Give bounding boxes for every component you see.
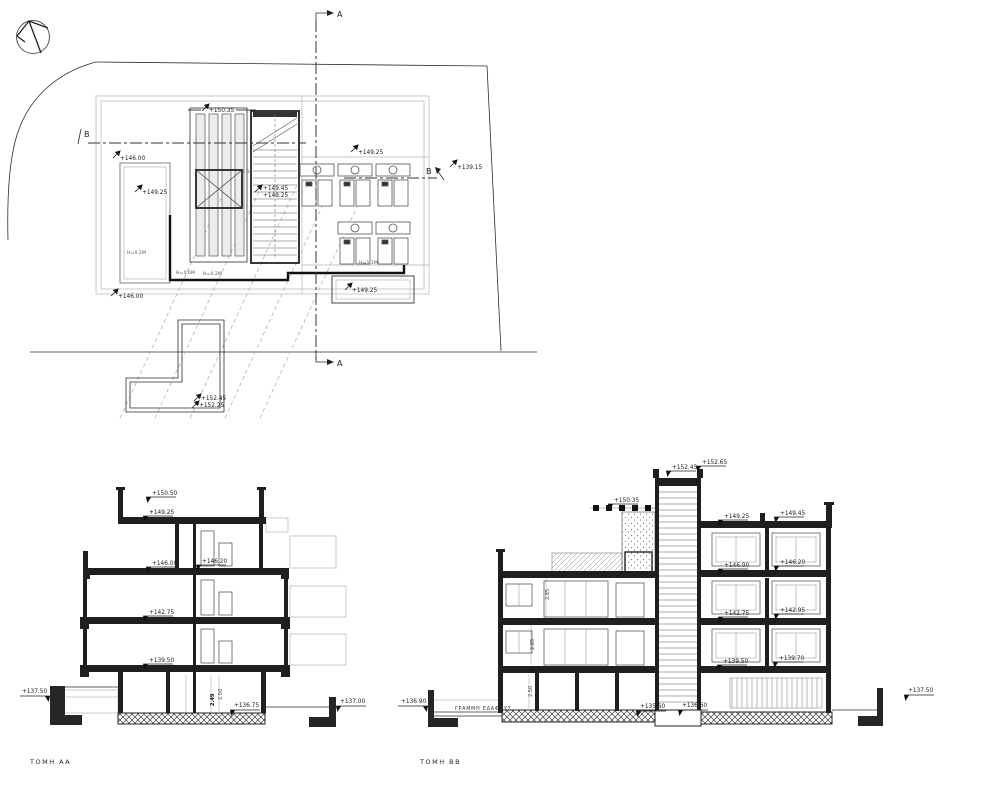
section-aa-title: ΤΟΜΗ ΑΑ	[29, 758, 71, 766]
level-label: +149.25	[358, 150, 383, 156]
level-label: +139.70	[779, 656, 804, 662]
level-label: +137.00	[340, 699, 365, 705]
height-note: H=0.2M	[203, 271, 222, 277]
level-label: +135.60	[640, 704, 665, 710]
level-label: +137.50	[908, 688, 933, 694]
level-label: +149.45	[263, 186, 288, 192]
pergola-slats	[590, 505, 655, 511]
level-label: +136.90	[401, 699, 426, 705]
level-label: +146.20	[202, 559, 227, 565]
section-marker-b-right: B	[426, 167, 432, 176]
dim-label: 2.49	[210, 693, 216, 706]
level-label: +146.00	[724, 563, 749, 569]
left-roof-terrace	[120, 163, 170, 283]
section-bb: +152.45 +152.65 +150.35 +149.25 +149.45 …	[398, 460, 934, 766]
section-marker-a-bottom: A	[337, 359, 343, 368]
level-label: +150.50	[152, 491, 177, 497]
level-label: +136.60	[682, 703, 707, 709]
height-note: H=0.6M	[176, 270, 195, 276]
elevator-pit	[655, 710, 701, 726]
level-label: +150.35	[614, 498, 639, 504]
plan-level-labels: +150.35 +146.00 +149.25 +149.45 +149.25 …	[111, 104, 482, 410]
section-marker-b-left: B	[84, 130, 90, 139]
ramp-grille	[730, 678, 822, 708]
north-arrow-icon	[17, 21, 50, 54]
level-label: +146.20	[780, 560, 805, 566]
level-label: +146.00	[120, 156, 145, 162]
level-label: +137.50	[22, 689, 47, 695]
height-note: H=1.1M	[359, 260, 378, 266]
site-boundary	[8, 62, 537, 352]
section-bb-title: ΤΟΜΗ ΒΒ	[419, 758, 461, 766]
level-label: +142.75	[149, 610, 174, 616]
level-label: +146.00	[118, 294, 143, 300]
section-aa-structure	[50, 487, 336, 727]
level-label: +136.75	[234, 703, 259, 709]
level-label: +142.95	[780, 608, 805, 614]
dim-label: 2.85	[530, 639, 536, 650]
section-aa: +150.50 +149.25 +146.00 +146.20 +142.75 …	[20, 487, 366, 766]
stair-tower	[653, 469, 703, 726]
height-note: H=0.2M	[127, 250, 146, 256]
level-label: +149.25	[724, 514, 749, 520]
level-label: +152.45	[672, 465, 697, 471]
level-label: +149.25	[142, 190, 167, 196]
dim-label: 2.85	[545, 589, 551, 600]
ground-line-note: ΓΡΑΜΜΗ ΕΔΑΦΟΥΣ	[455, 706, 512, 712]
level-label: +152.45	[201, 396, 226, 402]
level-label: +150.35	[209, 108, 234, 114]
level-label: +139.50	[723, 659, 748, 665]
roof-slats	[190, 108, 247, 262]
section-marker-a-top: A	[337, 10, 343, 19]
section-aa-windows	[201, 531, 232, 663]
level-label: +142.75	[724, 611, 749, 617]
level-label: +149.25	[149, 510, 174, 516]
level-label: +152.65	[702, 460, 727, 466]
level-label: +146.00	[152, 561, 177, 567]
section-bb-background	[434, 512, 655, 708]
level-label: +139.50	[149, 658, 174, 664]
level-label: +149.45	[780, 511, 805, 517]
level-label: +152.25	[199, 403, 224, 409]
level-label: +149.25	[352, 288, 377, 294]
drawing-canvas: A A B B +150.35 +146.00 +149.25 +149.45 …	[0, 0, 985, 790]
level-label: +139.15	[457, 165, 482, 171]
stair-treads	[659, 492, 697, 702]
dim-label: 2.50	[218, 689, 224, 700]
level-label: +149.25	[263, 193, 288, 199]
dim-label: 2.50	[528, 686, 534, 697]
dim-label: 1.50	[242, 169, 252, 175]
section-aa-background	[64, 518, 346, 713]
architectural-drawing-sheet: A A B B +150.35 +146.00 +149.25 +149.45 …	[0, 0, 985, 790]
